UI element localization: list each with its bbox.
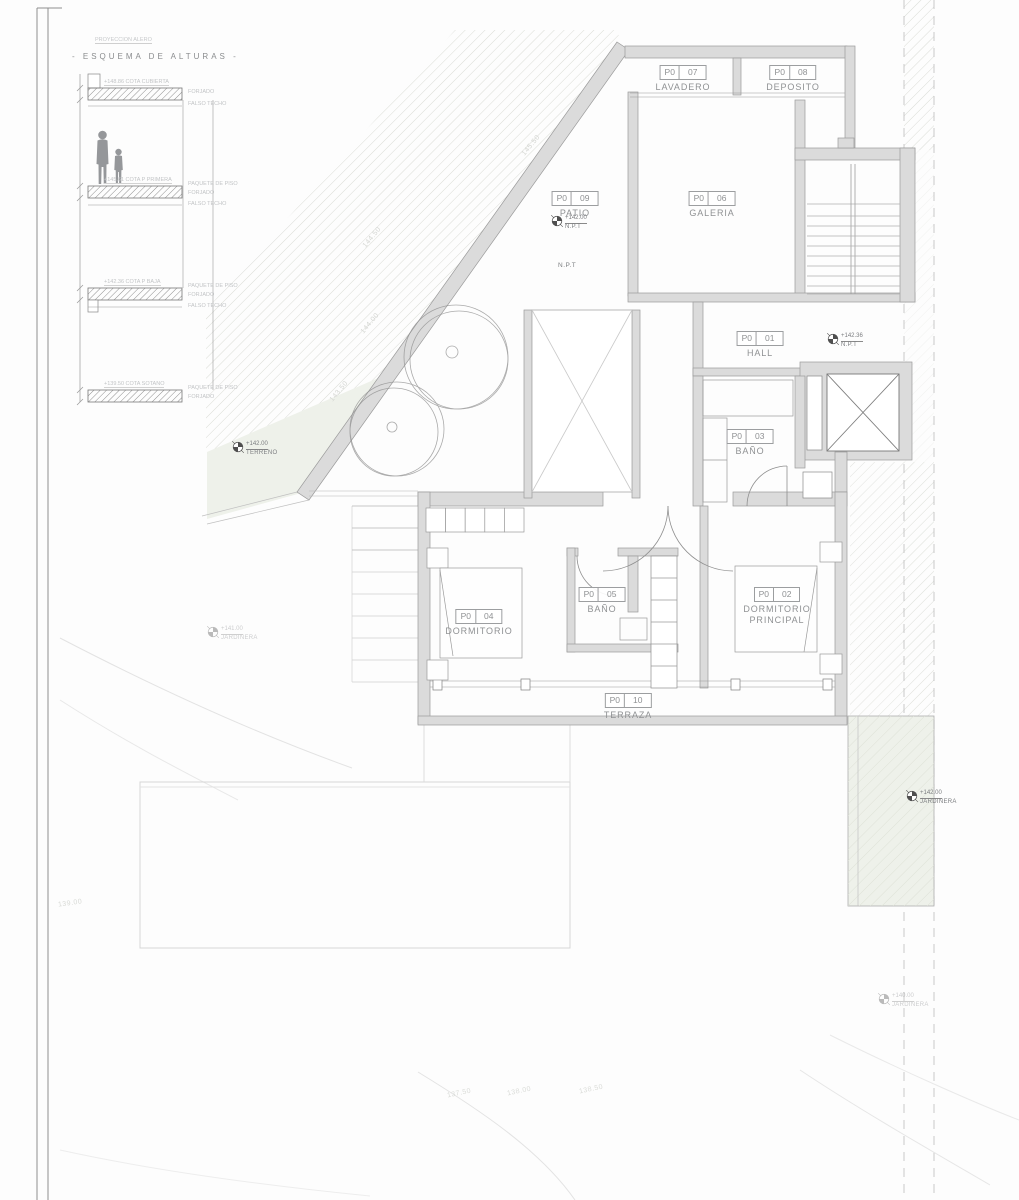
staircase	[807, 164, 900, 294]
room-code: P003	[727, 429, 774, 444]
annot: PAQUETE DE PISO	[188, 385, 238, 391]
room-code: P007	[660, 65, 707, 80]
room-label-patio: P009 PATIO	[552, 188, 599, 218]
annot: FORJADO	[188, 190, 214, 196]
level-marker-jardinera-right: +142.00JARDINERA	[906, 790, 957, 807]
room-code: P005	[579, 587, 626, 602]
room-code: P001	[737, 331, 784, 346]
room-code: P010	[605, 693, 652, 708]
room-code: P008	[770, 65, 817, 80]
level-marker-jardinera-left: +141.00JARDINERA	[207, 626, 258, 643]
exterior-steps	[352, 506, 420, 682]
sheet-frame	[37, 8, 62, 1200]
right-hatch-top	[904, 0, 934, 150]
room-label-hall: P001 HALL	[737, 328, 784, 358]
architectural-plan-sheet: PROYECCION ALERO - ESQUEMA DE ALTURAS - …	[0, 0, 1019, 1200]
annot: FALSO TECHO	[188, 201, 226, 207]
room-label-bano-03: P003 BAÑO	[727, 426, 774, 456]
annot: FORJADO	[188, 89, 214, 95]
cota-sotano: +139.50 COTA SOTANO	[104, 381, 164, 388]
level-marker-hall: +142.36N.P.T	[827, 333, 863, 350]
schema-title: - ESQUEMA DE ALTURAS -	[72, 52, 239, 61]
schema-note: PROYECCION ALERO	[95, 37, 152, 44]
cota-p-primera: +145.61 COTA P PRIMERA	[104, 177, 172, 184]
benchmark-icon	[232, 441, 244, 453]
benchmark-icon	[551, 215, 563, 227]
room-code: P002	[754, 587, 801, 602]
level-marker-patio: +142.00N.P.T	[551, 215, 587, 232]
right-hatch-mid	[850, 462, 934, 716]
npt-annotation: N.P.T	[558, 262, 576, 269]
benchmark-icon	[827, 333, 839, 345]
skylight-lightwell	[532, 310, 632, 492]
level-marker-terreno: +142.00TERRENO	[232, 441, 277, 458]
room-label-dormitorio-principal: P002 DORMITORIO PRINCIPAL	[731, 584, 823, 627]
annot: FALSO TECHO	[188, 303, 226, 309]
room-label-dormitorio: P004 DORMITORIO	[445, 606, 512, 636]
annot: FALSO TECHO	[188, 101, 226, 107]
room-code: P009	[552, 191, 599, 206]
elevator-shaft	[807, 374, 899, 451]
figure-adult	[97, 131, 109, 184]
annot: FORJADO	[188, 292, 214, 298]
annot: PAQUETE DE PISO	[188, 181, 238, 187]
room-label-galeria: P006 GALERIA	[689, 188, 736, 218]
height-schema	[77, 74, 213, 405]
wardrobe	[426, 508, 524, 532]
jardinera-right	[848, 716, 934, 906]
room-code: P004	[456, 609, 503, 624]
room-code: P006	[689, 191, 736, 206]
benchmark-icon	[878, 993, 890, 1005]
cota-p-baja: +142.36 COTA P BAJA	[104, 279, 161, 286]
benchmark-icon	[906, 790, 918, 802]
pool-deck	[140, 724, 570, 948]
annot: PAQUETE DE PISO	[188, 283, 238, 289]
cota-cubierta: +148.86 COTA CUBIERTA	[104, 79, 169, 86]
room-label-deposito: P008 DEPOSITO	[766, 62, 820, 92]
benchmark-icon	[207, 626, 219, 638]
room-label-bano-05: P005 BAÑO	[579, 584, 626, 614]
room-label-terraza: P010 TERRAZA	[604, 690, 652, 720]
room-label-lavadero: P007 LAVADERO	[656, 62, 711, 92]
window-mullions	[433, 679, 832, 690]
level-marker-jardinera-bottom: +140.00JARDINERA	[878, 993, 929, 1010]
annot: FORJADO	[188, 394, 214, 400]
